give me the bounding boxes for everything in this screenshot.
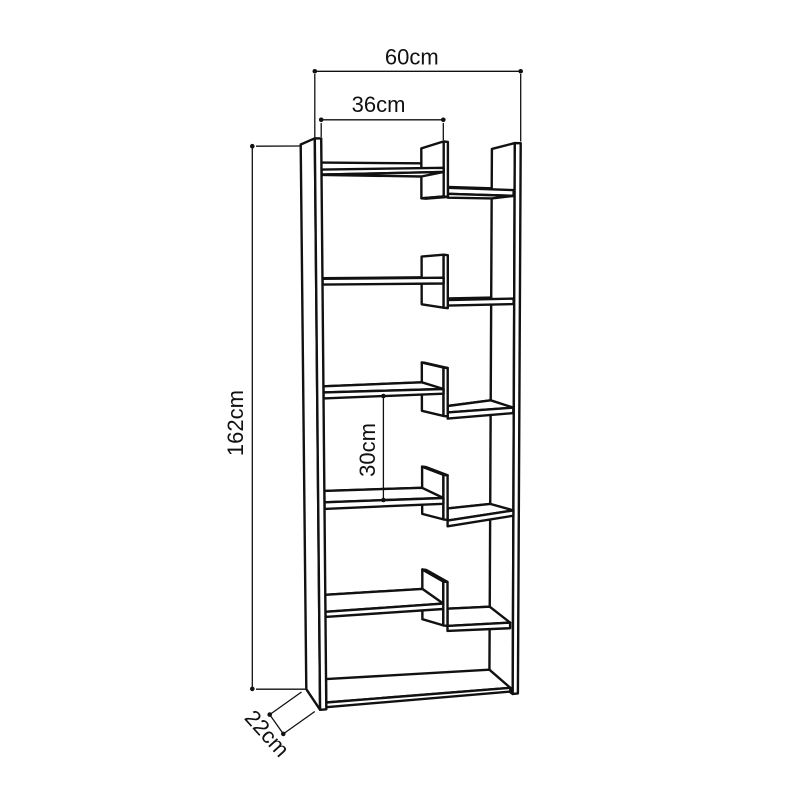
svg-text:60cm: 60cm xyxy=(385,45,439,70)
svg-text:36cm: 36cm xyxy=(352,92,406,117)
svg-text:30cm: 30cm xyxy=(355,423,380,477)
svg-text:162cm: 162cm xyxy=(223,390,248,456)
svg-text:22cm: 22cm xyxy=(240,705,295,762)
